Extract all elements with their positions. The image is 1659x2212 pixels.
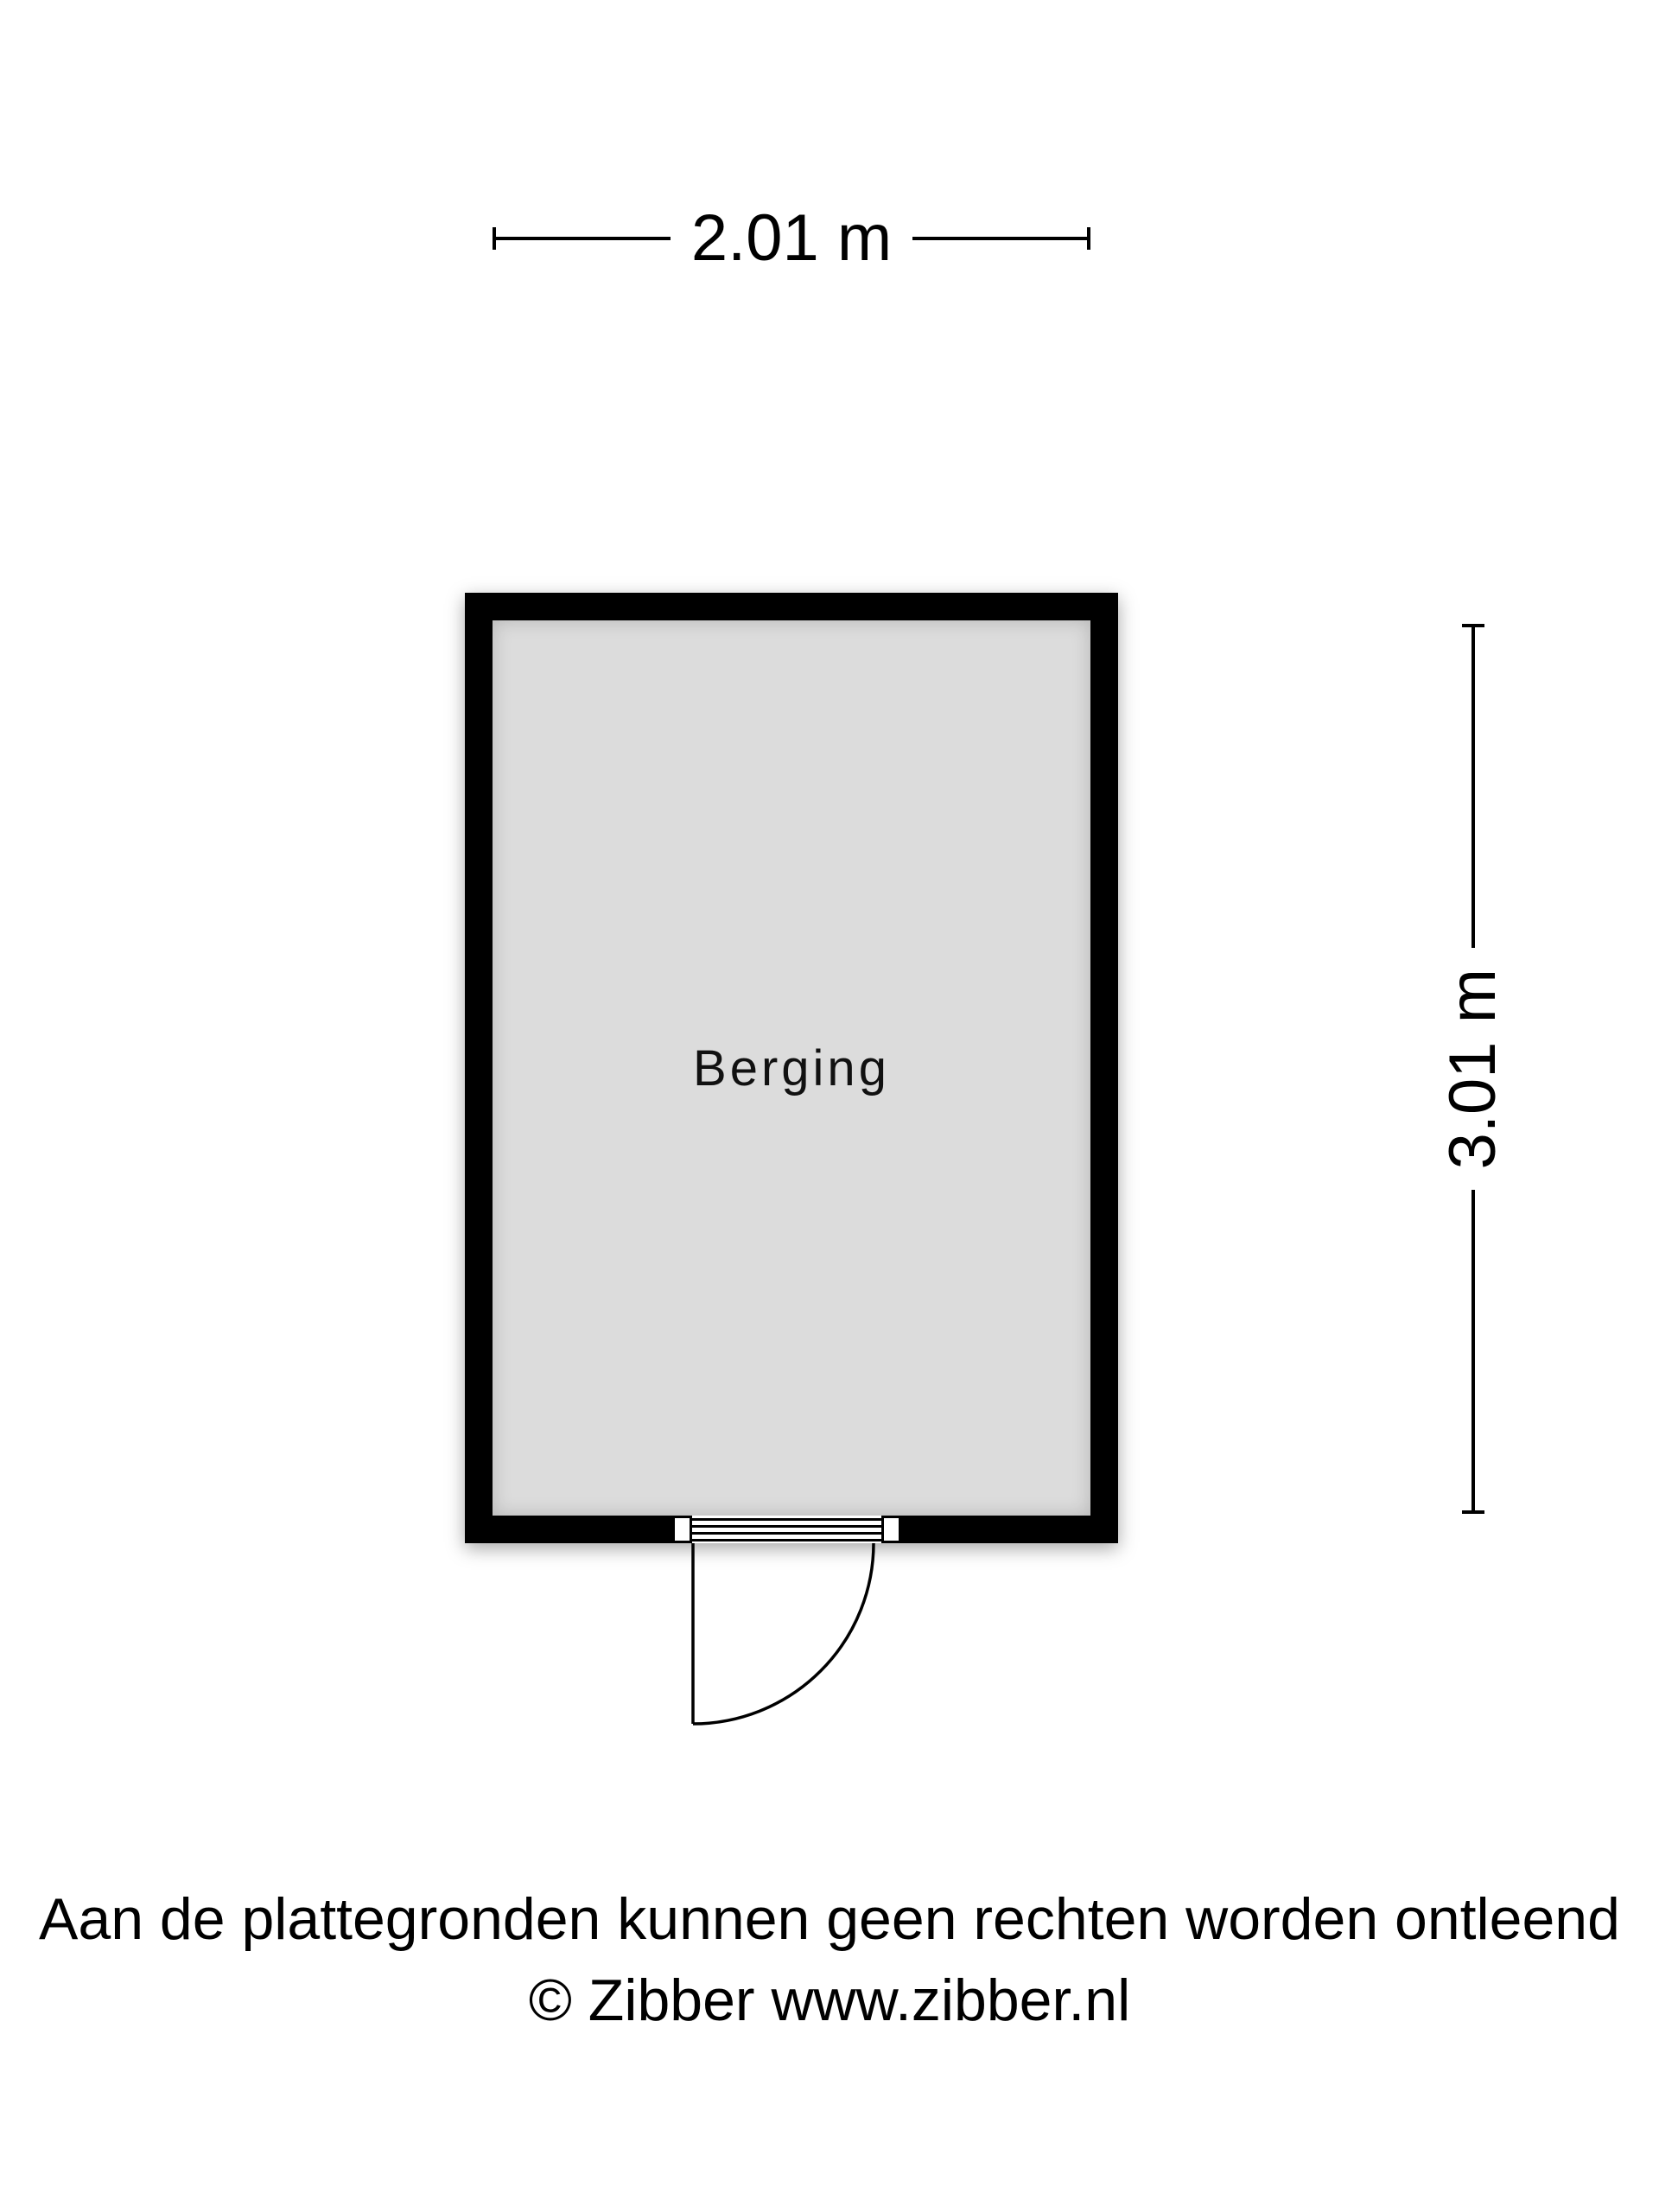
door-threshold-line (692, 1532, 881, 1535)
dimension-line-segment (496, 237, 671, 240)
dimension-line-segment (1471, 627, 1475, 948)
disclaimer-text: Aan de plattegronden kunnen geen rechten… (0, 1878, 1659, 1960)
floorplan-page: 2.01 m 3.01 m Berging Aan de plattegrond… (0, 0, 1659, 2212)
width-dimension-label: 2.01 m (691, 206, 892, 271)
height-dimension-label: 3.01 m (1440, 969, 1506, 1169)
door-threshold-line (692, 1525, 881, 1528)
door-jamb-left (672, 1516, 692, 1543)
door-opening (672, 1516, 901, 1543)
door-threshold-line (692, 1518, 881, 1521)
door-swing-arc (672, 1543, 884, 1732)
height-dimension: 3.01 m (1430, 624, 1516, 1514)
dimension-tick-bottom (1462, 1510, 1484, 1514)
dimension-line-segment (1471, 1190, 1475, 1510)
door-threshold-line (692, 1539, 881, 1541)
dimension-line-segment (912, 237, 1087, 240)
door-jamb-right (881, 1516, 901, 1543)
room-berging: Berging (465, 593, 1118, 1543)
room-label: Berging (693, 1039, 890, 1097)
copyright-text: © Zibber www.zibber.nl (0, 1960, 1659, 2041)
dimension-tick-right (1087, 227, 1090, 250)
footer-disclaimer: Aan de plattegronden kunnen geen rechten… (0, 1878, 1659, 2041)
width-dimension: 2.01 m (493, 195, 1090, 282)
